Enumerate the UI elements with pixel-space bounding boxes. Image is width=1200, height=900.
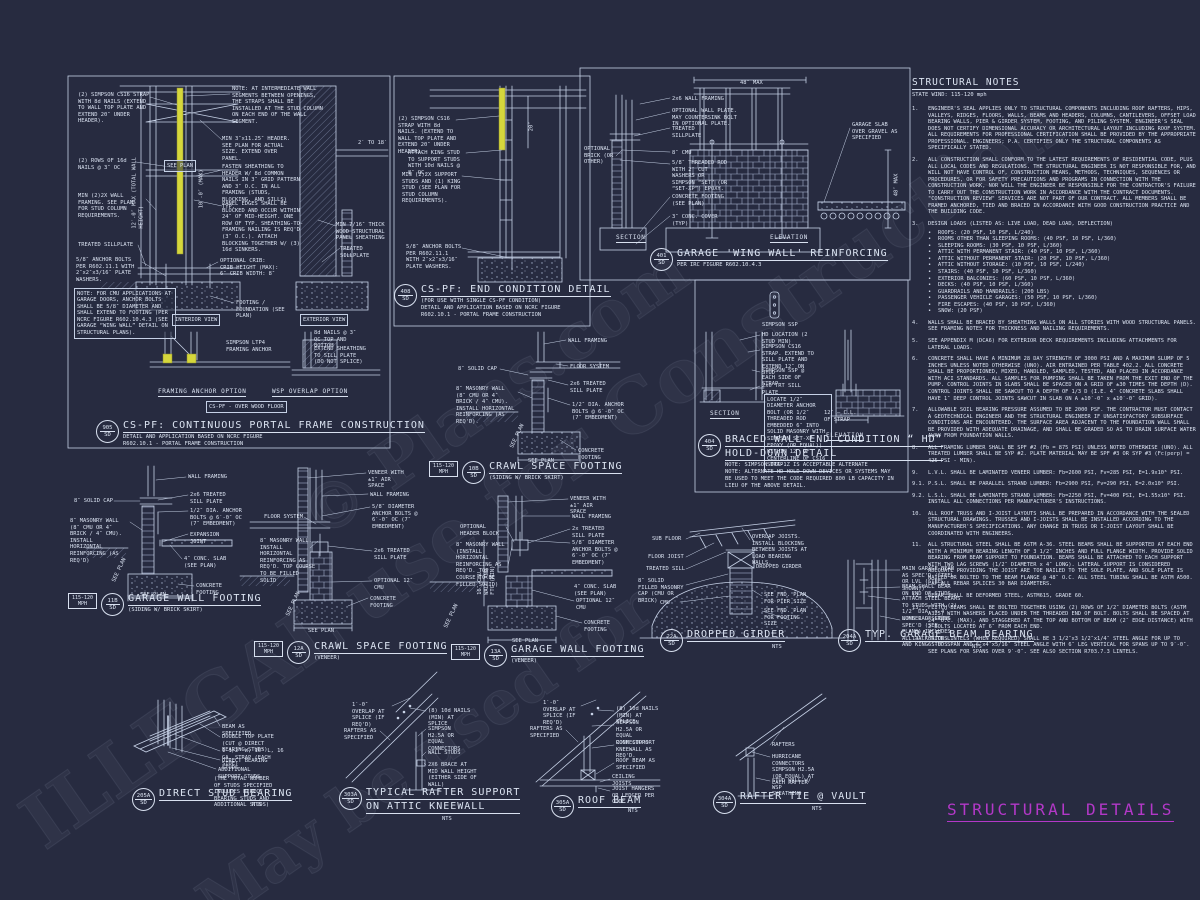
detail-title-text: TYPICAL RAFTER SUPPORTON ATTIC KNEEWALL <box>366 787 520 815</box>
notes-title: STRUCTURAL NOTES <box>912 77 1020 90</box>
detail-label: NOTE: FOR CMU APPLICATIONS AT GARAGE DOO… <box>74 288 176 339</box>
detail-label: 1/2″ DIA. ANCHOR BOLTS @ 6′-0″ OC (7″ EM… <box>572 402 628 422</box>
detail-label: 3″ CONC. COVER (TYP) <box>672 214 724 227</box>
detail-label: 8″ MASONRY WALL (8″ CMU OR 4″ BRICK / 4″… <box>70 518 128 564</box>
note-item: 9.L.V.L. SHALL BE LAMINATED VENEER LUMBE… <box>912 470 1199 477</box>
detail-label: ROOF SUPPORT KNEEWALL AS REQ'D. <box>616 740 660 760</box>
detail-label: RAFTERS AS SPECIFIED <box>344 728 380 741</box>
detail-bubble: 204ASD <box>838 629 861 652</box>
detail-bubble: 11BSD <box>101 593 124 616</box>
detail-bubble: 22ASD <box>660 629 683 652</box>
detail-label: PANEL EDGES SHALL BE BLOCKED AND OCCUR W… <box>222 201 304 254</box>
detail-subtitle: BE USED TO MEET THE CODE REQUIRED 800 LB… <box>725 476 943 483</box>
detail-subtitle: NOTE: SIMPSON DTT-1Z IS ACCEPTABLE ALTER… <box>725 462 943 469</box>
detail-title-block: 404SDBRACED WALL END CONDITION “ HD”HOLD… <box>698 434 943 490</box>
detail-label: FOOTING / FOUNDATION (SEE PLAN) <box>236 300 292 320</box>
detail-label: WALL FRAMING <box>572 514 612 521</box>
detail-label: WALL FRAMING <box>370 492 410 499</box>
detail-subtitle: DETAIL AND APPLICATION BASED ON NCRC FIG… <box>421 305 611 312</box>
detail-label: ELEVATION <box>770 234 808 243</box>
detail-label: SUB FLOOR <box>652 536 686 543</box>
detail-title-text: CRAWL SPACE FOOTING(SIDING W/ BRICK SKIR… <box>489 461 622 482</box>
note-item: 12.REBAR SHALL BE DEFORMED STEEL, ASTM61… <box>912 593 1199 600</box>
detail-bubble: 205ASD <box>132 788 155 811</box>
detail-title: GARAGE WALL FOOTING <box>511 644 644 657</box>
detail-label: OPTIONAL CRIB: CRIB HEIGHT (MAX): 6″ CRI… <box>220 258 280 278</box>
detail-label: OPTIONAL 12″ CMU <box>576 598 622 611</box>
detail-title-text: ROOF BEAM <box>578 795 641 809</box>
detail-label: VENEER WITH ±1″ AIR SPACE <box>368 470 408 490</box>
detail-label: SEE PLAN <box>443 601 461 629</box>
detail-label: 5/8″ DIAMETER ANCHOR BOLTS @ 6′-0″ OC (7… <box>572 540 622 566</box>
note-item: 10.ALL ROOF TRUSS AND I-JOIST LAYOUTS SH… <box>912 511 1199 537</box>
detail-bubble: 401SD <box>650 248 673 271</box>
detail-label: SEE PLAN <box>285 589 303 617</box>
detail-title: RAFTER TIE @ VAULT <box>740 791 866 804</box>
detail-label: 2x TREATED SILL PLATE <box>572 526 616 539</box>
detail-title: DROPPED GIRDER <box>687 629 785 642</box>
detail-label: 8″ SOLID CAP <box>74 498 114 505</box>
sheet-title: STRUCTURAL DETAILS <box>947 800 1174 822</box>
wind-speed-badge: 115-120MPH <box>451 644 480 660</box>
detail-label: 10′-0″ (MAX) <box>199 168 206 208</box>
detail-label: WALL FRAMING <box>188 474 228 481</box>
detail-label: EXPANSION JOINT <box>190 532 238 545</box>
detail-label: SEE PLAN <box>164 160 196 172</box>
detail-label: 8″ MASONRY WALL (8″ CMU OR 4″ BRICK / 4″… <box>456 386 516 426</box>
detail-bubble: 408SD <box>394 284 417 307</box>
detail-label: DROPPED GIRDER <box>756 564 806 571</box>
detail-label: FLOOR JOIST <box>648 554 686 561</box>
detail-label: SEE PLAN <box>308 628 340 635</box>
detail-title-block: 205ASDDIRECT STUD BEARING <box>132 788 292 811</box>
detail-title-block: 115-120MPH13ASDGARAGE WALL FOOTING(VENEE… <box>451 644 644 667</box>
note-item: 6.CONCRETE SHALL HAVE A MINIMUM 28 DAY S… <box>912 356 1199 402</box>
detail-label: NTS <box>442 816 452 823</box>
detail-label: RAFTERS AS SPECIFIED <box>530 726 564 739</box>
detail-subtitle: (VENEER) <box>511 658 644 665</box>
note-item: 2.ALL CONSTRUCTION SHALL CONFORM TO THE … <box>912 157 1199 216</box>
detail-label: ROOF BEAM AS SPECIFIED <box>616 758 658 771</box>
detail-label: (2) SIMPSON CS16 STRAP WITH 8d NAILS (EX… <box>78 92 150 125</box>
detail-label: GARAGE SLAB OVER GRAVEL AS SPECIFIED <box>852 122 898 142</box>
note-item: 13.FLITCH BEAMS SHALL BE BOLTED TOGETHER… <box>912 605 1199 631</box>
note-item: 1.ENGINEER'S SEAL APPLIES ONLY TO STRUCT… <box>912 106 1199 152</box>
note-item: 8.ALL FRAMING LUMBER SHALL BE SPF #2 (Fb… <box>912 445 1199 465</box>
notes-list: 1.ENGINEER'S SEAL APPLIES ONLY TO STRUCT… <box>912 106 1199 656</box>
detail-title-text: RAFTER TIE @ VAULT <box>740 791 866 805</box>
detail-label: 8″ MASONRY WALL. INSTALL HORIZONTAL REIN… <box>260 538 316 584</box>
detail-title-text: CS-PF: END CONDITION DETAIL(FOR USE WITH… <box>421 284 611 319</box>
detail-label: OPTIONAL HEADER BLOCK <box>460 524 504 537</box>
note-item: 5.SEE APPENDIX M (DCA6) FOR EXTERIOR DEC… <box>912 338 1199 351</box>
detail-label: TREATED SILLPLATE <box>78 242 138 249</box>
design-load-list: •ROOFS: (20 PSF, 10 PSF, L/240)•ROOMS OT… <box>928 230 1117 315</box>
detail-title: HOLD-DOWN DETAIL <box>725 448 943 461</box>
wind-speed-badge: 115-120MPH <box>68 593 97 609</box>
detail-label: CONCRETE FOOTING <box>578 448 622 461</box>
detail-bubble: 303ASD <box>339 787 362 810</box>
detail-label: 20″ <box>529 115 536 131</box>
note-item: 14.BRICK LINTELS (WHEN REQUIRED) SHALL B… <box>912 636 1199 656</box>
detail-bubble: 10BSD <box>462 461 485 484</box>
detail-title: GARAGE 'WING WALL' REINFORCING <box>677 248 888 261</box>
detail-label: SIMPSON LTP4 FRAMING ANCHOR <box>226 340 272 353</box>
detail-title: ON ATTIC KNEEWALL <box>366 801 520 814</box>
detail-label: VENEER WITH ±1″ AIR SPACE <box>570 496 610 516</box>
note-item: 4.WALLS SHALL BE BRACED BY SHEATHING WAL… <box>912 320 1199 333</box>
detail-bubble: 905SD <box>96 420 119 443</box>
detail-label: CONCRETE FOOTING <box>370 596 416 609</box>
detail-label: NOTE: AT INTERMEDIATE WALL SEGMENTS BETW… <box>232 86 324 126</box>
detail-label: TREATED SILLPLATE <box>340 246 388 259</box>
detail-title: GARAGE WALL FOOTING <box>128 593 261 606</box>
structural-notes: STRUCTURAL NOTES STATE WIND: 115-120 mph… <box>912 70 1199 661</box>
detail-title-block: 115-120MPH10BSDCRAWL SPACE FOOTING(SIDIN… <box>429 461 622 484</box>
detail-subtitle: (FOR USE WITH SINGLE CS-PF CONDITION) <box>421 298 611 305</box>
detail-label: 48″ MAX <box>740 80 770 87</box>
detail-label: OVERLAP JOISTS. INSTALL BLOCKING BETWEEN… <box>752 534 812 567</box>
detail-label: 1′-0″ OVERLAP AT SPLICE (IF REQ'D) <box>543 700 581 726</box>
detail-subtitle: (SIDING W/ BRICK SKIRT) <box>489 475 622 482</box>
note-item: 9.1.P.S.L. SHALL BE PARALLEL STRAND LUMB… <box>912 481 1199 488</box>
detail-label: FRAMING ANCHOR OPTION <box>158 388 246 397</box>
detail-title-text: CS-PF: CONTINUOUS PORTAL FRAME CONSTRUCT… <box>123 420 425 448</box>
detail-label: OPTIONAL BRICK (OR OTHER) <box>584 146 622 166</box>
detail-label: 12″ — C.L. OF STRAP <box>824 410 858 423</box>
detail-title-block: 401SDGARAGE 'WING WALL' REINFORCINGPER I… <box>650 248 888 271</box>
detail-subtitle: PER IRC FIGURE R602.10.4.3 <box>677 262 888 269</box>
wind-speed-badge: 115-120MPH <box>254 641 283 657</box>
detail-label: CONCRETE FOOTING (SEE PLAN) <box>672 194 724 207</box>
detail-label: SECTION <box>616 234 646 243</box>
detail-label: 2x6 TREATED SILL PLATE <box>570 381 618 394</box>
detail-label: OPTIONAL 12″ CMU <box>374 578 422 591</box>
detail-label: FLOOR SYSTEM <box>264 514 304 521</box>
detail-bubble: 304ASD <box>713 791 736 814</box>
detail-title-text: CRAWL SPACE FOOTING(VENEER) <box>314 641 447 662</box>
detail-label: MIN 7/16″ THICK WOOD STRUCTURAL PANEL SH… <box>336 222 388 242</box>
note-item: 3.DESIGN LOADS (LISTED AS: LIVE LOAD, DE… <box>912 221 1199 315</box>
detail-label: 4″ CONC. SLAB (SEE PLAN) <box>574 584 620 597</box>
detail-label: WALL FRAMING <box>568 338 610 345</box>
detail-title-block: 304ASDRAFTER TIE @ VAULT <box>713 791 866 814</box>
detail-label: 48″ MAX <box>894 166 901 196</box>
detail-title: DIRECT STUD BEARING <box>159 788 292 801</box>
detail-title-block: 115-120MPH12ASDCRAWL SPACE FOOTING(VENEE… <box>254 641 447 664</box>
detail-title-block: 115-120MPH11BSDGARAGE WALL FOOTING(SIDIN… <box>68 593 261 616</box>
detail-label: EXTERIOR VIEW <box>300 314 348 326</box>
detail-title: CRAWL SPACE FOOTING <box>489 461 622 474</box>
detail-title-text: BRACED WALL END CONDITION “ HD”HOLD-DOWN… <box>725 434 943 490</box>
detail-label: SIMPSON H2.5A OR EQUAL CONNECTORS <box>428 726 470 752</box>
detail-label: SIMPSON SSP <box>762 322 807 329</box>
note-item: 9.2.L.S.L. SHALL BE LAMINATED STRAND LUM… <box>912 493 1199 506</box>
detail-label: OPTIONAL WALL PLATE. MAY COUNTERSINK BOL… <box>672 108 738 128</box>
detail-title-text: GARAGE WALL FOOTING(VENEER) <box>511 644 644 665</box>
detail-label: CMU <box>660 600 680 607</box>
detail-label: 12′-0″ MAX (TOTAL WALL HEIGHT) <box>131 145 144 229</box>
detail-label: 8″ CMU <box>672 150 702 157</box>
detail-label: EXTEND SHEATHING TO SILL PLATE (DO NOT S… <box>314 346 366 366</box>
detail-label: MIN 3″x11.25″ HEADER. SEE PLAN FOR ACTUA… <box>222 136 294 162</box>
detail-subtitle: DETAIL AND APPLICATION BASED ON NCRC FIG… <box>123 434 425 441</box>
detail-title-block: 905SDCS-PF: CONTINUOUS PORTAL FRAME CONS… <box>96 420 425 448</box>
detail-label: (2) ROWS OF 16d NAILS @ 3″ OC <box>78 158 134 171</box>
detail-title-text: DIRECT STUD BEARING <box>159 788 292 802</box>
detail-label: MIN (2)2X SUPPORT STUDS AND (1) KING STU… <box>402 172 462 205</box>
detail-title-text: GARAGE WALL FOOTING(SIDING W/ BRICK SKIR… <box>128 593 261 614</box>
detail-subtitle: R602.10.1 - PORTAL FRAME CONSTRUCTION <box>421 312 611 319</box>
detail-label: 8″ SOLID CAP <box>458 366 500 373</box>
detail-label: CONCRETE FOOTING <box>584 620 628 633</box>
detail-label: WSP OVERLAP OPTION <box>272 388 348 397</box>
detail-title: CRAWL SPACE FOOTING <box>314 641 447 654</box>
detail-subtitle: LIEU OF THE ABOVE DETAIL. <box>725 483 943 490</box>
detail-title: TYPICAL RAFTER SUPPORT <box>366 787 520 800</box>
detail-label: 5/8″ ANCHOR BOLTS PER R602.11.1 WITH 2″x… <box>76 257 140 283</box>
detail-label: 2x6 TREATED SILL PLATE <box>374 548 422 561</box>
detail-label: RAFTERS <box>772 742 802 749</box>
note-item: 7.ALLOWABLE SOIL BEARING PRESSURE ASSUME… <box>912 407 1199 440</box>
detail-title-block: 305ASDROOF BEAM <box>551 795 641 818</box>
detail-label: 5/8″ ANCHOR BOLTS PER R602.11.1 WITH 2″x… <box>406 244 462 270</box>
detail-title: BRACED WALL END CONDITION “ HD” <box>725 434 943 447</box>
detail-label: TREATED SILL <box>646 566 686 573</box>
detail-title-block: 22ASDDROPPED GIRDER <box>660 629 785 652</box>
detail-label: 2X6 BRACE AT MID WALL HEIGHT (EITHER SID… <box>428 762 478 788</box>
detail-label: WALL STUDS <box>428 750 464 757</box>
detail-label: 1/2″ DIA. ANCHOR BOLTS @ 6′-0″ OC (7″ EM… <box>190 508 244 528</box>
detail-label: 2x6 TREATED SILL PLATE <box>190 492 238 505</box>
detail-subtitle: R602.10.1 - PORTAL FRAME CONSTRUCTION <box>123 441 425 448</box>
detail-label: SEE FND. PLAN FOR PIER SIZE <box>764 592 812 605</box>
detail-title-text: DROPPED GIRDER <box>687 629 785 643</box>
detail-subtitle: NOTE: ALTERNATE HD HOLD-DOWN DEVICES OR … <box>725 469 943 476</box>
note-item: 11.ALL STRUCTURAL STEEL SHALL BE ASTM A-… <box>912 542 1199 588</box>
wind-speed-badge: 115-120MPH <box>429 461 458 477</box>
detail-subtitle: (SIDING W/ BRICK SKIRT) <box>128 607 261 614</box>
detail-label: CS-PF - OVER WOOD FLOOR <box>206 401 287 413</box>
detail-label: 2x6 WALL FRAMING <box>672 96 727 103</box>
detail-bubble: 12ASD <box>287 641 310 664</box>
detail-label: 5/8″ DIAMETER ANCHOR BOLTS @ 6′-0″ OC (7… <box>372 504 426 530</box>
detail-title-block: 408SDCS-PF: END CONDITION DETAIL(FOR USE… <box>394 284 611 319</box>
detail-label: 1′-0″ OVERLAP AT SPLICE (IF REQ'D) <box>352 702 392 728</box>
detail-label: 5/8″ THREADED ROD WITH 2″ CUT WASHERS OR… <box>672 160 730 193</box>
detail-label: FLOOR SYSTEM <box>570 364 612 371</box>
detail-title-text: GARAGE 'WING WALL' REINFORCINGPER IRC FI… <box>677 248 888 269</box>
detail-title-block: 303ASDTYPICAL RAFTER SUPPORTON ATTIC KNE… <box>339 787 520 815</box>
blueprint-sheet: (2) SIMPSON CS16 STRAP WITH 8d NAILS (EX… <box>0 0 1200 900</box>
detail-label: 2′ TO 18′ <box>358 140 388 147</box>
detail-label: (8) 10d NAILS (MIN) AT SPLICE <box>428 708 474 728</box>
detail-label: 4″ CONC. SLAB (SEE PLAN) <box>184 556 228 569</box>
detail-bubble: 404SD <box>698 434 721 457</box>
detail-label: SEE FND. PLAN FOR FOOTING SIZE <box>764 608 814 628</box>
detail-title: CS-PF: END CONDITION DETAIL <box>421 284 611 297</box>
detail-subtitle: (VENEER) <box>314 655 447 662</box>
detail-bubble: 305ASD <box>551 795 574 818</box>
detail-title: ROOF BEAM <box>578 795 641 808</box>
detail-label: TREATED SILLPLATE <box>672 126 727 139</box>
detail-label: 16″ CMU WALL AND FTG (MIN) <box>477 561 497 595</box>
detail-title: CS-PF: CONTINUOUS PORTAL FRAME CONSTRUCT… <box>123 420 425 433</box>
notes-subtitle: STATE WIND: 115-120 mph <box>912 92 1199 98</box>
detail-label: INTERIOR VIEW <box>172 314 220 326</box>
detail-bubble: 13ASD <box>484 644 507 667</box>
detail-label: SECTION <box>710 410 740 419</box>
